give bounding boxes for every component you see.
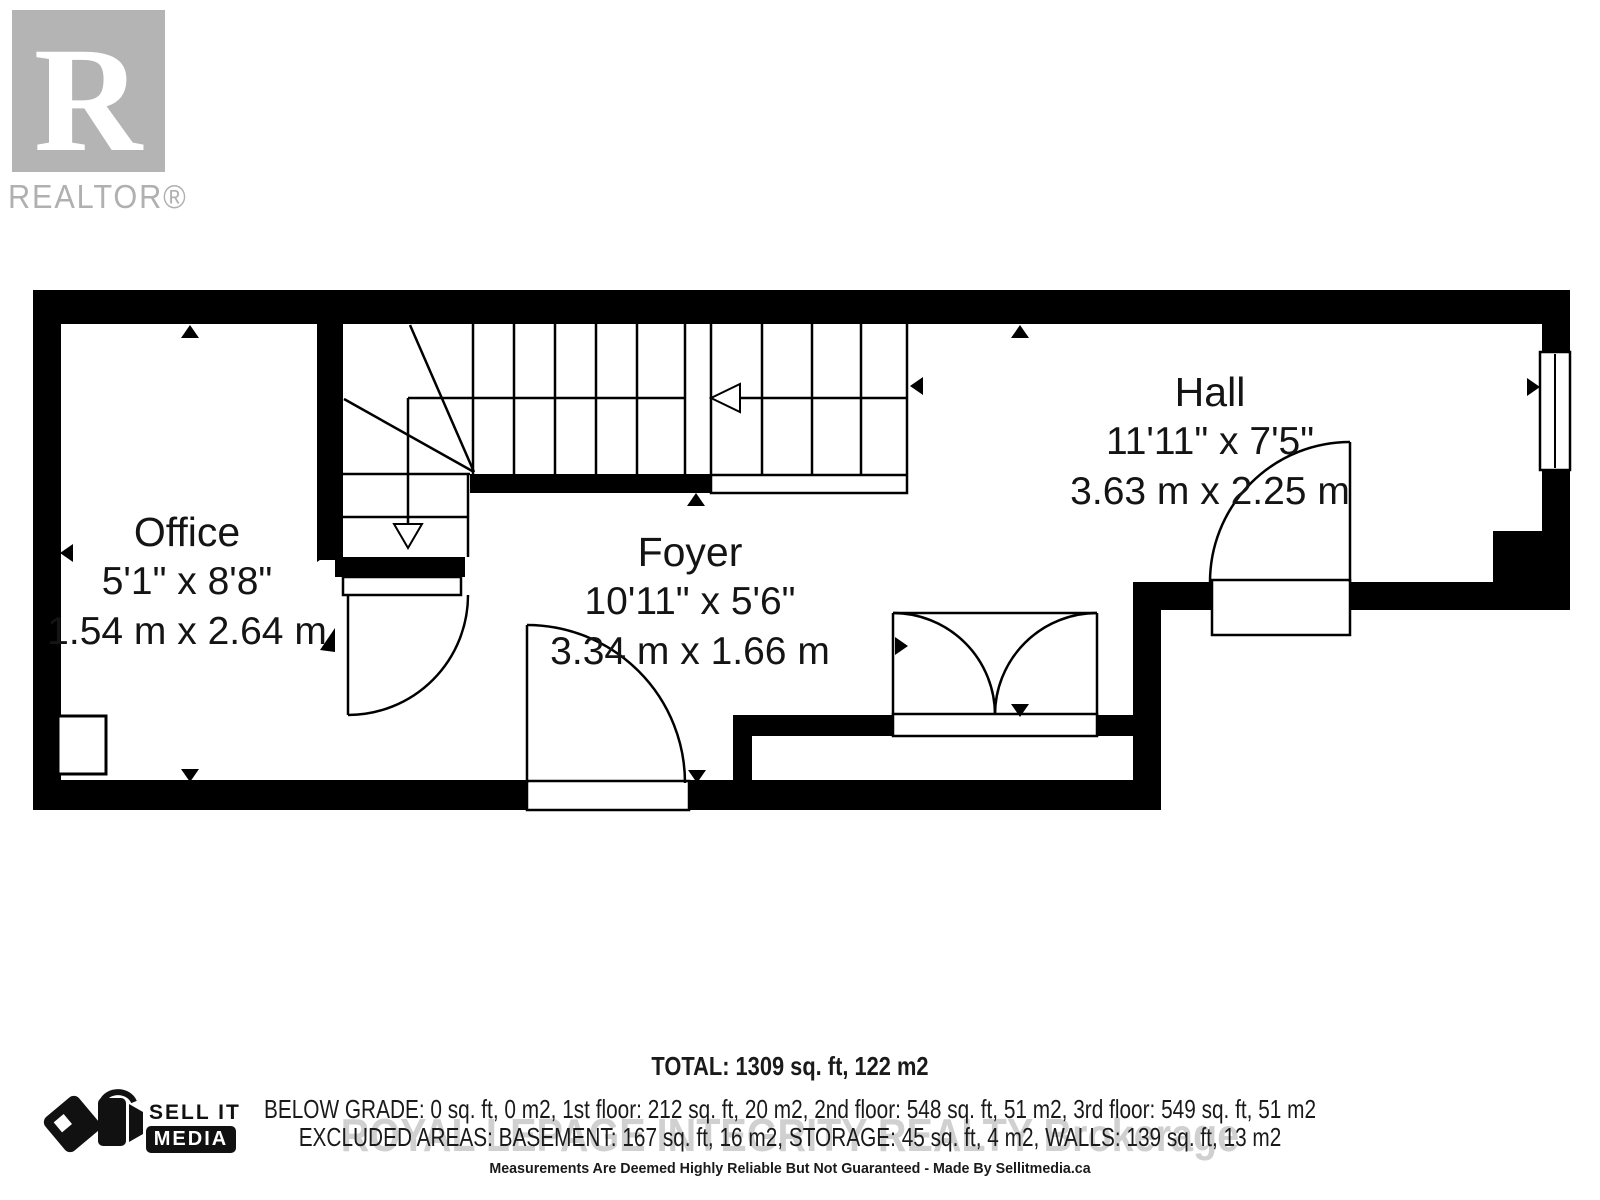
- arrow-left-icon: [910, 377, 923, 395]
- realtor-logo-icon: R: [12, 10, 165, 183]
- arrow-up-icon: [181, 325, 199, 338]
- wall-top: [33, 290, 1570, 324]
- room-label-office: Office 5'1" x 8'8" 1.54 m x 2.64 m: [47, 507, 327, 657]
- room-dims-metric: 3.34 m x 1.66 m: [550, 627, 830, 677]
- room-label-foyer: Foyer 10'11" x 5'6" 3.34 m x 1.66 m: [550, 527, 830, 677]
- arrow-right-icon: [1527, 378, 1540, 396]
- disclaimer-text: Measurements Are Deemed Highly Reliable …: [40, 1160, 1541, 1177]
- wall-stair-door-header: [335, 557, 465, 577]
- wall-stair-bottom-band: [470, 474, 711, 493]
- double-door-threshold: [893, 714, 1097, 736]
- room-dims-metric: 3.63 m x 2.25 m: [1070, 467, 1350, 517]
- arrow-right-icon: [895, 637, 908, 655]
- room-dims-metric: 1.54 m x 2.64 m: [47, 607, 327, 657]
- room-label-hall: Hall 11'11" x 7'5" 3.63 m x 2.25 m: [1070, 367, 1350, 517]
- floor-plan-page: { "branding": { "realtor_logo_letter": "…: [0, 0, 1600, 1200]
- front-door-threshold: [527, 781, 689, 810]
- wall-hall-corner-step: [1493, 531, 1570, 582]
- excluded-areas-text: EXCLUDED AREAS: BASEMENT: 167 sq. ft, 16…: [158, 1122, 1422, 1153]
- stair-top-threshold: [711, 475, 907, 493]
- room-dims-imperial: 11'11" x 7'5": [1070, 417, 1350, 467]
- stair-door: [348, 595, 468, 715]
- below-grade-text: BELOW GRADE: 0 sq. ft, 0 m2, 1st floor: …: [158, 1094, 1422, 1125]
- staircase: [343, 324, 907, 557]
- wall-right-upper: [1542, 290, 1570, 352]
- closet-box: [58, 716, 106, 774]
- arrow-up-icon: [687, 493, 705, 506]
- wall-step-band-right: [1097, 715, 1161, 736]
- room-name: Hall: [1070, 367, 1350, 417]
- wall-step-stub: [733, 715, 752, 810]
- wall-foyer-right: [1133, 582, 1161, 810]
- room-dims-imperial: 5'1" x 8'8": [47, 557, 327, 607]
- total-area-text: TOTAL: 1309 sq. ft, 122 m2: [126, 1051, 1453, 1082]
- room-dims-imperial: 10'11" x 5'6": [550, 577, 830, 627]
- realtor-wordmark: REALTOR®: [8, 178, 188, 216]
- wall-step-band-left: [733, 715, 893, 736]
- room-name: Office: [47, 507, 327, 557]
- wall-bottom-left: [33, 780, 527, 810]
- stair-arrow-down-icon: [394, 524, 422, 548]
- stair-arrow-left-icon: [711, 384, 740, 412]
- hall-door-threshold: [1212, 580, 1350, 635]
- arrow-up-icon: [1011, 325, 1029, 338]
- double-doors: [893, 613, 1097, 715]
- room-name: Foyer: [550, 527, 830, 577]
- stair-door-threshold: [343, 577, 461, 595]
- realtor-logo-letter: R: [34, 17, 144, 183]
- wall-bottom-mid: [689, 780, 1161, 810]
- wall-hall-bottom-right: [1350, 582, 1570, 610]
